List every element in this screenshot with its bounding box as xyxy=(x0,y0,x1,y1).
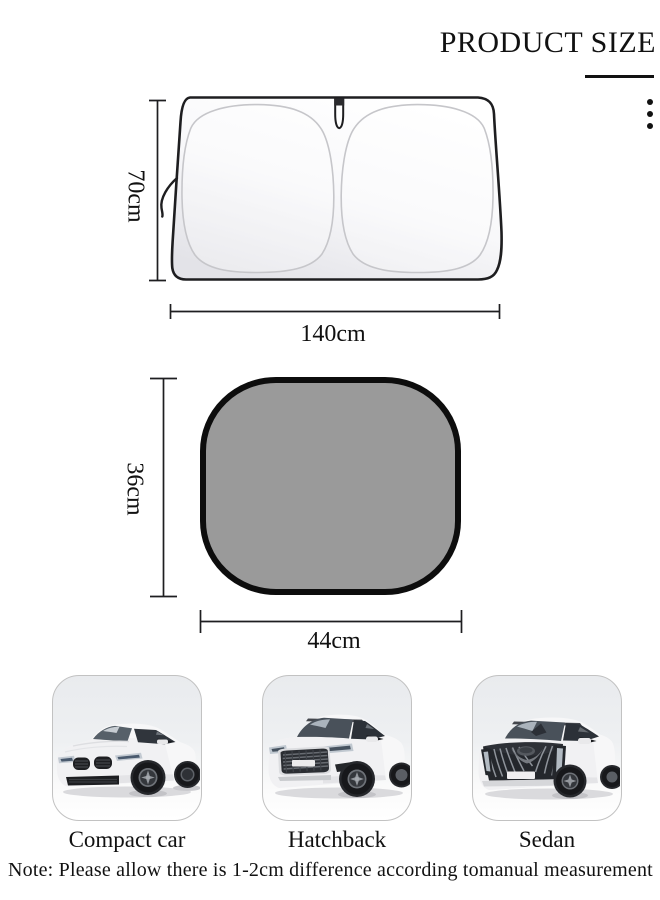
svg-text:140cm: 140cm xyxy=(300,321,366,347)
svg-text:70cm: 70cm xyxy=(122,169,148,223)
svg-text:36cm: 36cm xyxy=(121,462,147,516)
svg-text:44cm: 44cm xyxy=(307,628,361,654)
